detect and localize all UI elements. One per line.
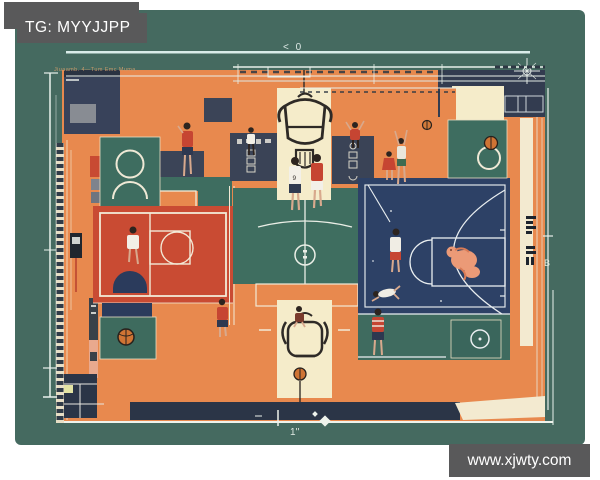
watermark-bottom: www.xjwty.com <box>449 444 590 477</box>
jersey-number: 9 <box>293 175 297 182</box>
basketball-icon <box>423 121 432 130</box>
top-cream-strip <box>277 70 331 200</box>
basketball-icon <box>118 329 134 345</box>
panel-top-left <box>64 70 120 134</box>
top-marker-label: < 0 <box>283 42 303 53</box>
right-dim-label: B <box>544 258 550 268</box>
page: B 1'' < 0 Jiuaamb. 4—Tum Emc Muma <box>0 0 600 480</box>
bottom-dim-label: 1'' <box>290 427 299 438</box>
court-illustration: B 1'' < 0 Jiuaamb. 4—Tum Emc Muma <box>0 0 600 480</box>
watermark-top-text: TG: MYYJJPP <box>25 19 130 37</box>
watermark-bottom-text: www.xjwty.com <box>468 452 572 470</box>
bottom-navy-band <box>130 402 460 420</box>
hoop-ring-panel <box>448 120 507 178</box>
annotation-text: Jiuaamb. 4—Tum Emc Muma <box>54 67 136 73</box>
avatar-panel <box>100 137 160 211</box>
watermark-top: TG: MYYJJPP <box>17 13 147 43</box>
